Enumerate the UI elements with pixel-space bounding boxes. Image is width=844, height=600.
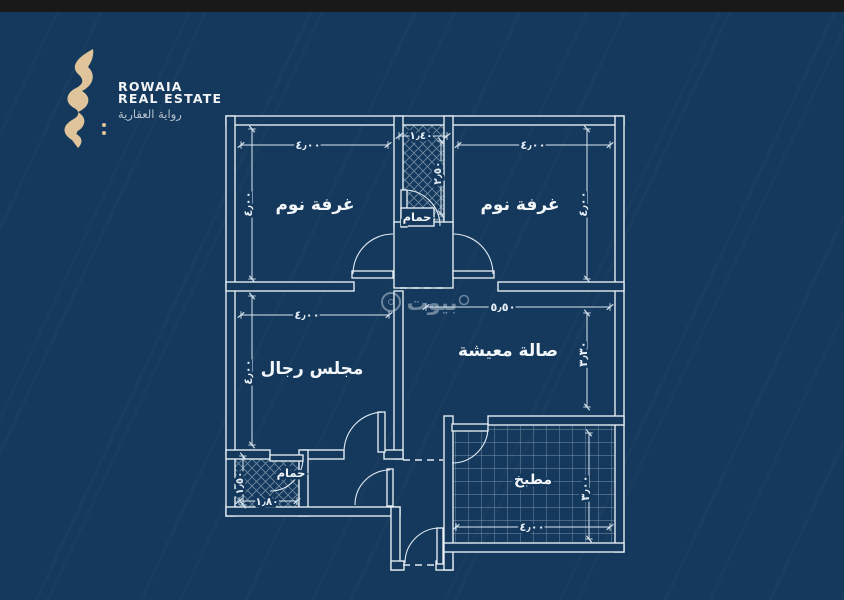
door-bedroom-top-left [352, 234, 393, 278]
room-label-bedroom-top-left: غرفة نوم [275, 195, 354, 215]
svg-text:٣٫٣٠: ٣٫٣٠ [576, 341, 590, 366]
svg-text:١٫٨٠: ١٫٨٠ [255, 496, 278, 508]
room-label-bedroom-top-right: غرفة نوم [480, 195, 559, 215]
dim-majlis-width: ٤٫٠٠ [241, 308, 389, 322]
svg-text:٢٫٥٠: ٢٫٥٠ [432, 161, 444, 184]
svg-text:٤٫٠٠: ٤٫٠٠ [294, 308, 319, 322]
svg-text:٤٫٠٠: ٤٫٠٠ [241, 359, 255, 384]
floor-hatches [235, 125, 615, 543]
door-corridor-inner [355, 469, 393, 506]
dashed-openings [400, 288, 448, 565]
svg-text:٥٫٥٠: ٥٫٥٠ [490, 300, 515, 314]
svg-text:٤٫٠٠: ٤٫٠٠ [519, 520, 544, 534]
watermark-house-icon-dot [389, 300, 394, 305]
dim-bedroom-tr-height: ٤٫٠٠ [576, 129, 590, 279]
room-label-bathroom-bottom: حمام [277, 466, 306, 480]
room-label-kitchen: مطبخ [514, 472, 552, 488]
svg-text:١٫٥٠: ١٫٥٠ [234, 471, 246, 494]
door-main-entrance [405, 528, 443, 564]
room-label-living-hall: صالة معيشة [458, 341, 558, 361]
room-label-majlis: مجلس رجال [261, 359, 364, 379]
svg-text:٤٫٠٠: ٤٫٠٠ [241, 191, 255, 216]
svg-text:٤٫٠٠: ٤٫٠٠ [576, 191, 590, 216]
door-majlis [344, 412, 385, 452]
watermark-small-circle [460, 296, 469, 305]
svg-text:٣٫٠٠: ٣٫٠٠ [578, 475, 592, 500]
watermark-text: بيوت [407, 291, 458, 315]
floor-plan: ٤٫٠٠ ٤٫٠٠ ١٫٤٠ ٢٫٥٠ ٤٫٠٠ ٤٫٠٠ [0, 0, 844, 600]
svg-text:٤٫٠٠: ٤٫٠٠ [520, 138, 545, 152]
svg-text:١٫٤٠: ١٫٤٠ [409, 130, 432, 142]
room-label-bathroom-top: حمام [403, 210, 432, 224]
door-bedroom-top-right [453, 234, 494, 278]
dim-living-height: ٣٫٣٠ [576, 313, 590, 407]
svg-text:٤٫٠٠: ٤٫٠٠ [295, 138, 320, 152]
dim-bedroom-tl-height: ٤٫٠٠ [241, 129, 255, 279]
dim-bedroom-tl-width: ٤٫٠٠ [241, 138, 388, 152]
screenshot-stage: ROWAIA REAL ESTATE رواية العقارية [0, 0, 844, 600]
dim-majlis-height: ٤٫٠٠ [241, 296, 255, 445]
